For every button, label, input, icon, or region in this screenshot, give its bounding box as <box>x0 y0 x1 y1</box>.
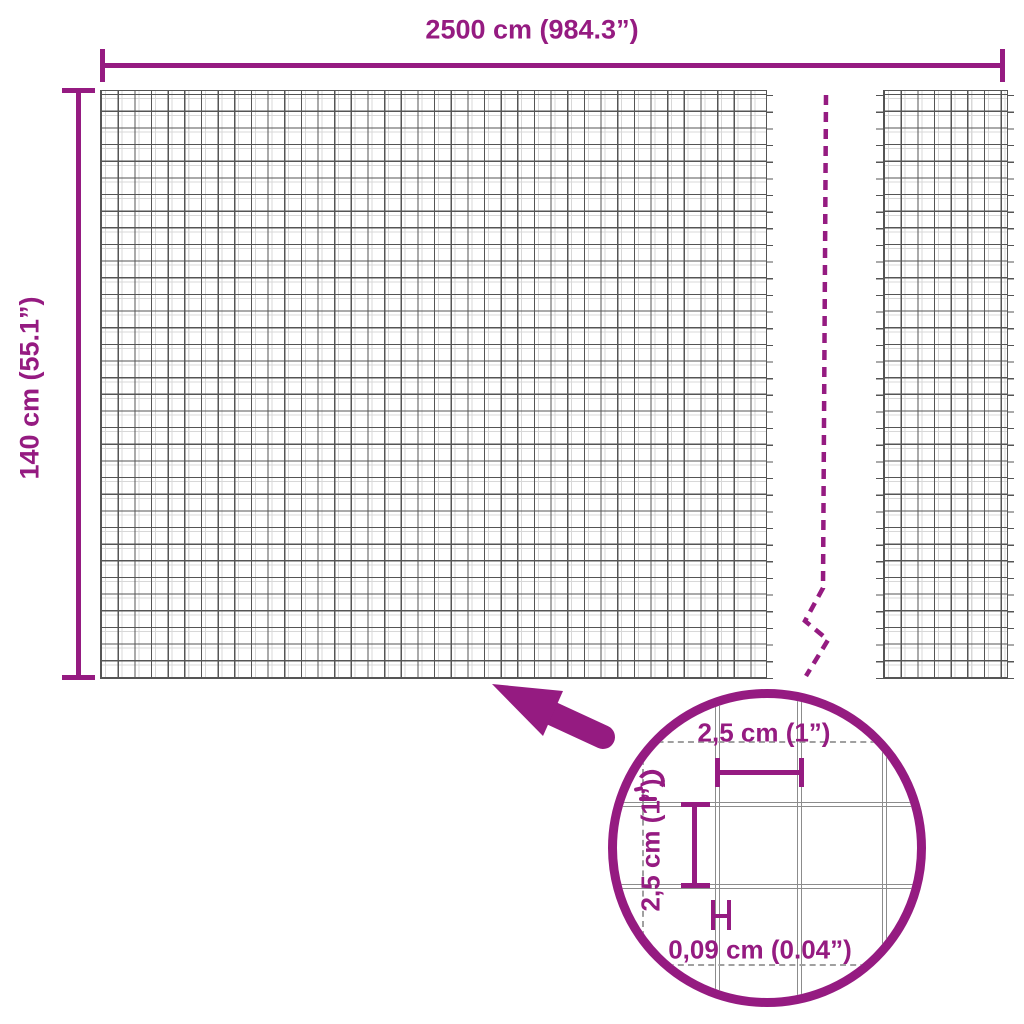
detail-magnifier-circle: 2,5 cm (1”) 2,5 cm (1”) 0,09 cm (0.04”) <box>608 689 926 1007</box>
detail-cell-width-dimension-line <box>718 770 802 775</box>
zoom-arrow-icon <box>492 684 603 737</box>
product-dimension-diagram: 2500 cm (984.3”) 140 cm (55.1”) 2,5 <box>0 0 1024 1024</box>
detail-wire-vertical <box>882 698 887 998</box>
detail-cell-width-tick-left <box>715 758 720 787</box>
detail-cell-height-dimension-line <box>692 805 697 888</box>
detail-wire-thickness-label: 0,09 cm (0.04”) <box>668 935 852 966</box>
mesh-break-dashed-line-icon <box>805 95 828 676</box>
detail-cell-width-label: 2,5 cm (1”) <box>698 718 831 749</box>
detail-cell-height-tick-top <box>681 802 710 807</box>
detail-cell-width-tick-right <box>799 758 804 787</box>
detail-cell-height-tick-bottom <box>681 883 710 888</box>
